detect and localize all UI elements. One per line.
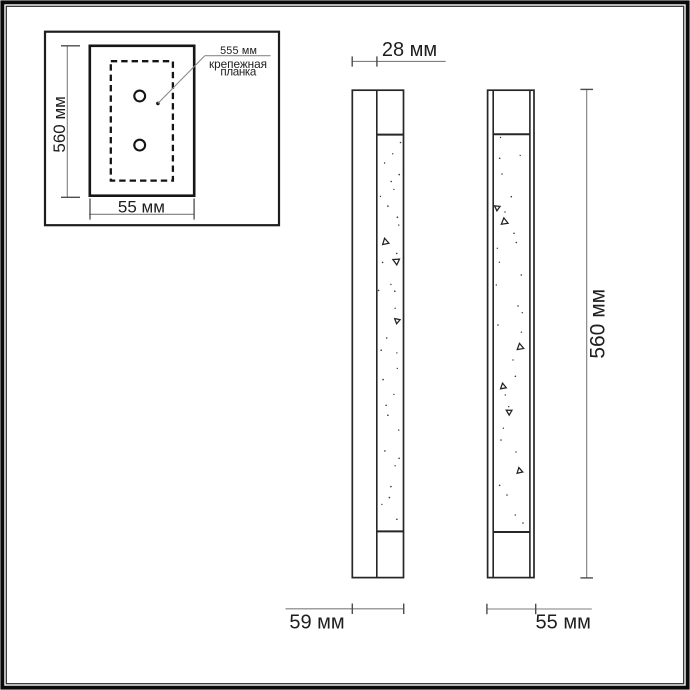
svg-text:555 мм: 555 мм [220, 45, 257, 57]
svg-text:560 мм: 560 мм [50, 96, 69, 152]
svg-text:59 мм: 59 мм [289, 612, 344, 634]
svg-text:28 мм: 28 мм [382, 39, 437, 61]
svg-text:55 мм: 55 мм [536, 611, 591, 633]
svg-text:55 мм: 55 мм [118, 197, 165, 216]
svg-text:планка: планка [220, 65, 256, 78]
svg-text:560 мм: 560 мм [586, 289, 609, 359]
